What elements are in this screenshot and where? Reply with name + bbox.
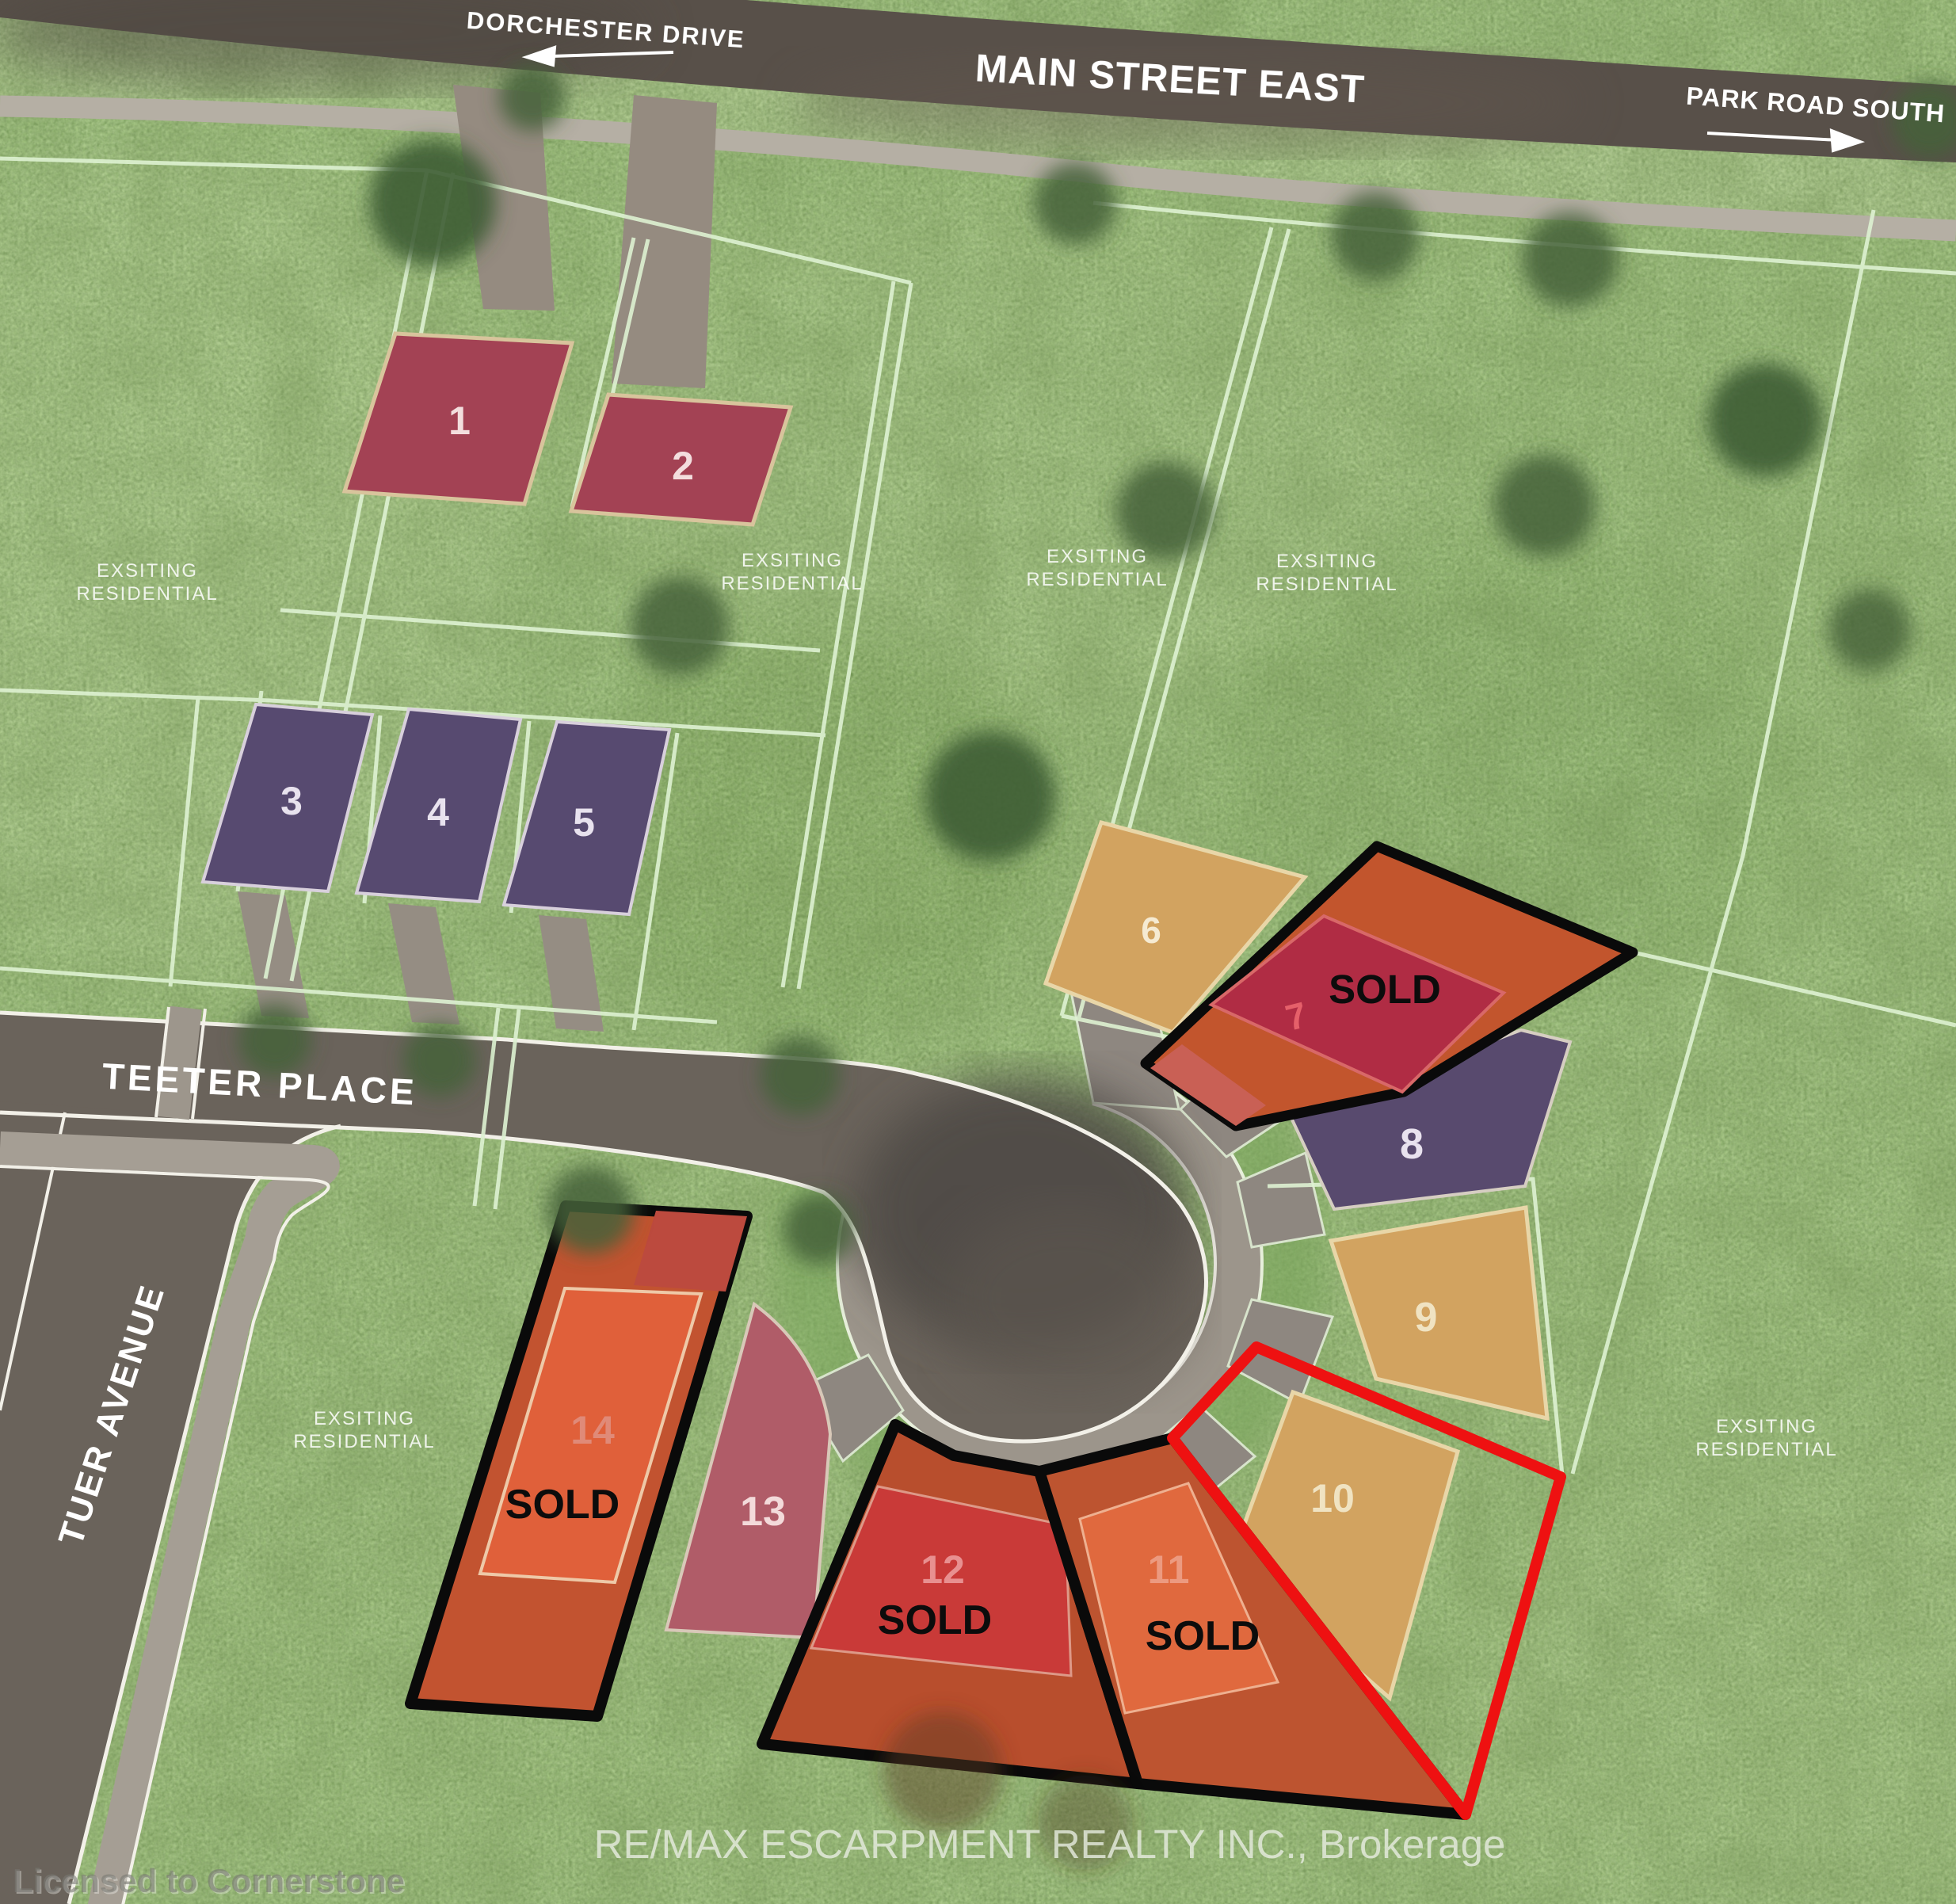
svg-text:9: 9: [1415, 1295, 1438, 1341]
svg-text:RESIDENTIAL: RESIDENTIAL: [1695, 1439, 1837, 1460]
svg-text:3: 3: [280, 779, 303, 823]
svg-text:10: 10: [1310, 1476, 1355, 1521]
svg-text:EXSITING: EXSITING: [1047, 546, 1148, 567]
svg-text:1: 1: [448, 399, 471, 443]
svg-text:11: 11: [1148, 1547, 1190, 1592]
svg-text:6: 6: [1141, 910, 1161, 951]
svg-text:14: 14: [570, 1408, 615, 1452]
svg-text:SOLD: SOLD: [505, 1482, 620, 1528]
svg-text:12: 12: [921, 1547, 965, 1592]
svg-text:8: 8: [1400, 1120, 1424, 1168]
svg-text:SOLD: SOLD: [1146, 1613, 1260, 1659]
svg-text:4: 4: [427, 790, 449, 834]
svg-text:2: 2: [672, 444, 694, 488]
svg-text:RESIDENTIAL: RESIDENTIAL: [293, 1431, 435, 1452]
svg-text:RESIDENTIAL: RESIDENTIAL: [76, 583, 218, 605]
svg-text:13: 13: [740, 1489, 786, 1535]
svg-text:EXSITING: EXSITING: [97, 560, 198, 582]
svg-text:EXSITING: EXSITING: [1716, 1416, 1817, 1437]
svg-text:RE/MAX ESCARPMENT REALTY INC.,: RE/MAX ESCARPMENT REALTY INC., Brokerage: [594, 1822, 1506, 1867]
svg-text:EXSITING: EXSITING: [742, 550, 843, 571]
svg-text:EXSITING: EXSITING: [1276, 551, 1378, 572]
svg-text:5: 5: [573, 800, 595, 845]
svg-text:SOLD: SOLD: [1329, 967, 1441, 1012]
svg-text:EXSITING: EXSITING: [314, 1408, 415, 1429]
svg-text:RESIDENTIAL: RESIDENTIAL: [1256, 574, 1397, 595]
svg-text:RESIDENTIAL: RESIDENTIAL: [1026, 569, 1168, 590]
svg-text:Licensed to Cornerstone: Licensed to Cornerstone: [13, 1862, 405, 1899]
svg-text:SOLD: SOLD: [878, 1597, 992, 1643]
svg-text:RESIDENTIAL: RESIDENTIAL: [721, 573, 863, 594]
